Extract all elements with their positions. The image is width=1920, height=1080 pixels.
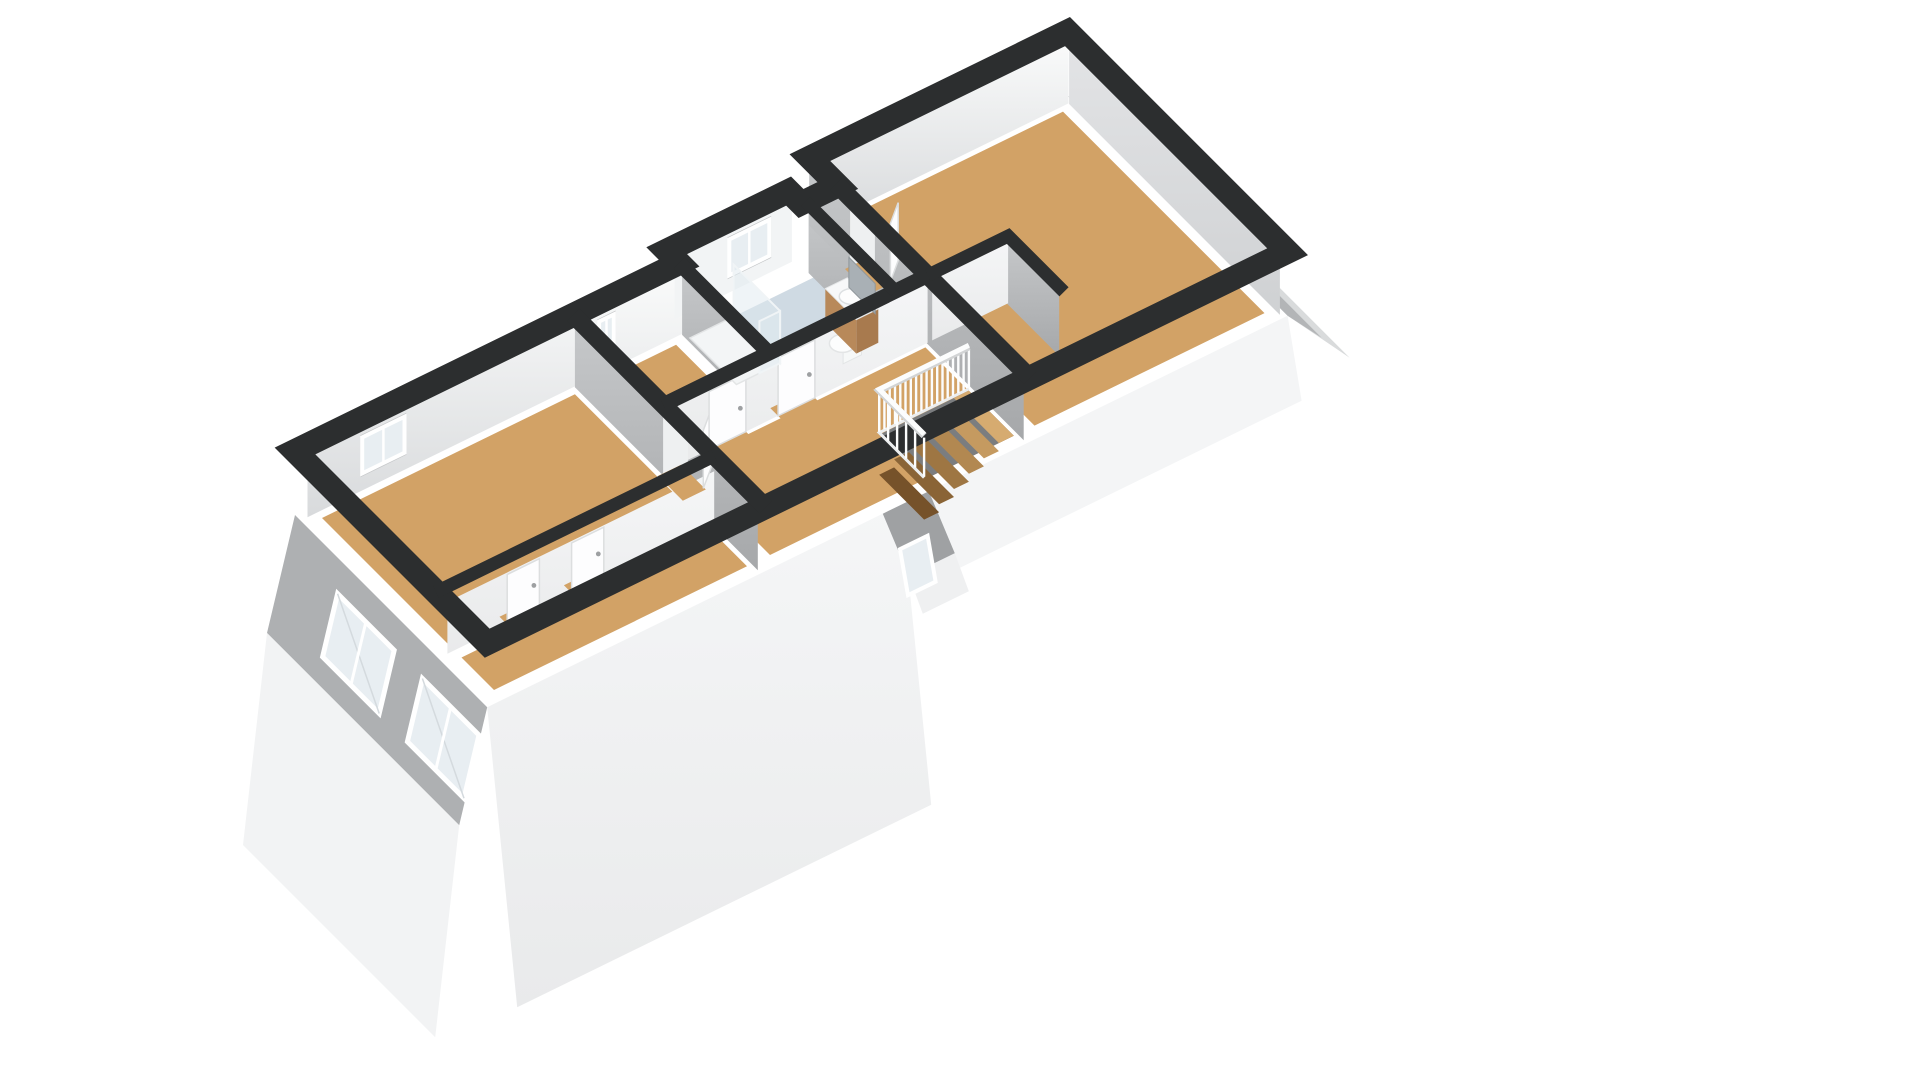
stairwell-exterior-window	[900, 536, 936, 596]
floorplan-canvas	[0, 0, 1920, 1080]
floorplan-3d-render	[0, 0, 1920, 1080]
